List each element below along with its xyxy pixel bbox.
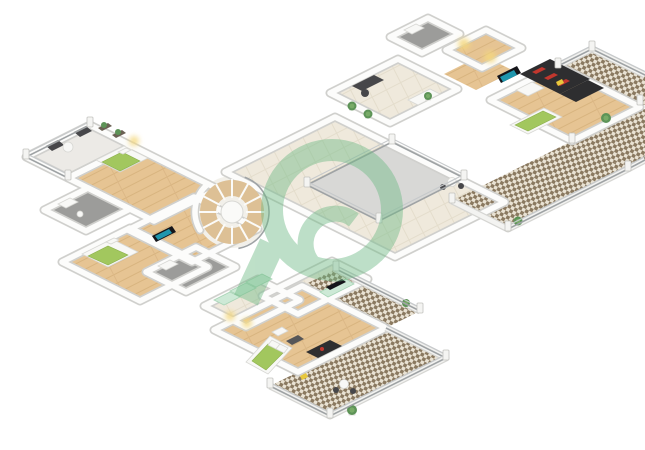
recessed-light bbox=[458, 38, 470, 50]
round-table bbox=[340, 380, 349, 389]
floor-plan-image bbox=[0, 0, 645, 450]
round-table bbox=[63, 142, 73, 152]
stair-center-column bbox=[221, 201, 243, 223]
recessed-light bbox=[484, 51, 496, 63]
lamp-glow bbox=[129, 136, 139, 146]
villa-floor-plan-svg bbox=[0, 0, 645, 450]
wc bbox=[77, 211, 83, 217]
red-cushion bbox=[320, 347, 324, 351]
floor-study-landing bbox=[330, 59, 458, 123]
desk-chair bbox=[361, 89, 369, 97]
